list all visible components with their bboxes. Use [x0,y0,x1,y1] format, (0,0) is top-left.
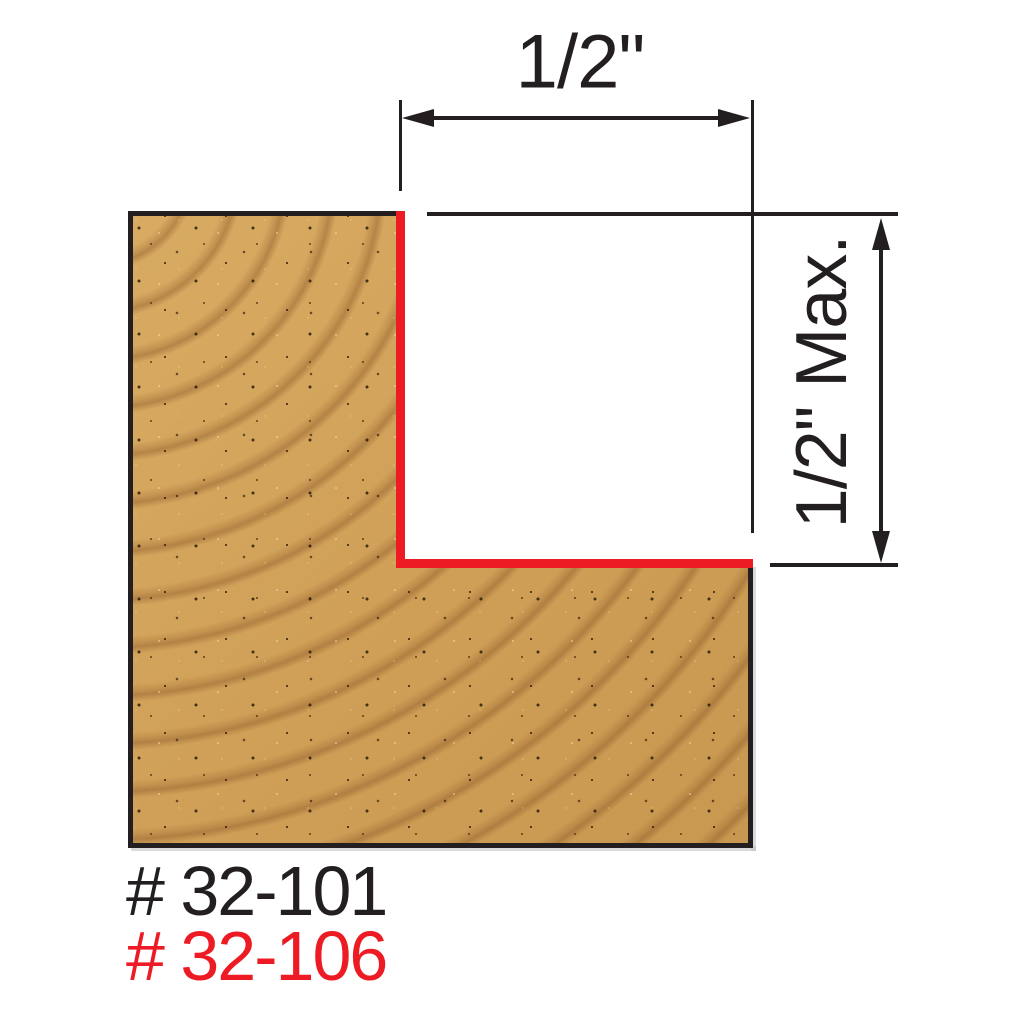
wood-edge-bottom [128,843,753,848]
depth-extension-line-top [427,212,898,216]
part-number-primary: # 32-101 [126,856,386,926]
diagram-canvas: 1/2" 1/2" Max. # 32-101 # 32-106 [0,0,1024,1024]
arrowhead-down-icon [872,531,890,563]
wood-edge-top [128,211,401,216]
depth-arrow-line [879,232,883,535]
wood-block [128,211,753,848]
width-arrow-line [412,116,742,120]
depth-extension-line-bottom [770,563,898,567]
wood-edge-right [748,564,753,848]
width-extension-line-right [751,100,754,533]
depth-dimension-label: 1/2" Max. [781,236,863,529]
arrowhead-left-icon [402,109,434,127]
cut-edge-horizontal [396,559,753,568]
arrowhead-up-icon [872,218,890,250]
wood-edge-left [128,211,133,848]
arrowhead-right-icon [718,109,750,127]
width-dimension-label: 1/2" [516,19,645,106]
part-number-secondary: # 32-106 [126,921,386,991]
cut-edge-vertical [396,211,405,568]
